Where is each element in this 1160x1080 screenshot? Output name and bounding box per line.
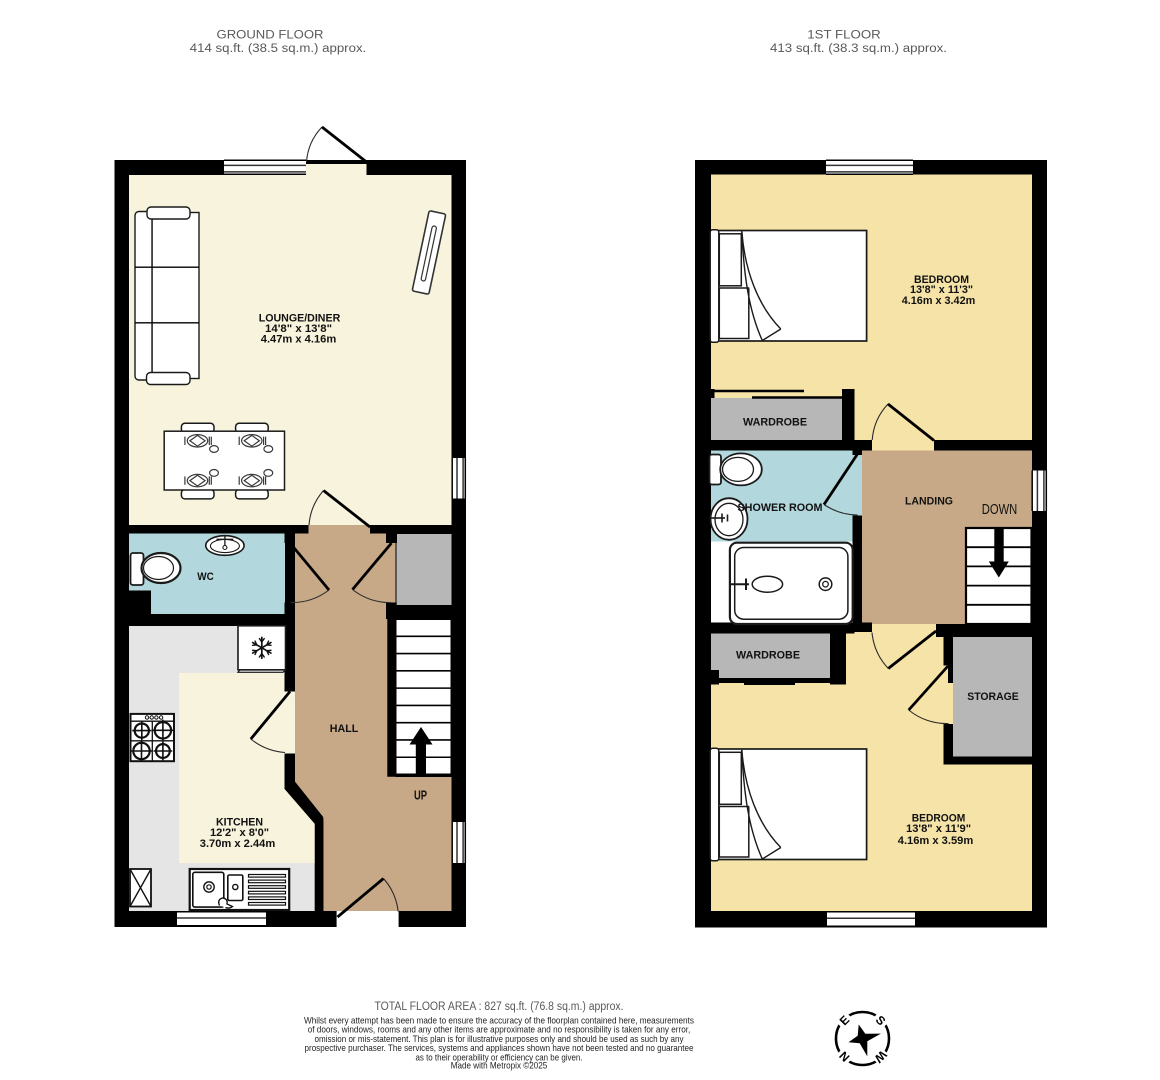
svg-text:WARDROBE: WARDROBE bbox=[736, 650, 800, 662]
svg-text:4.47m x 4.16m: 4.47m x 4.16m bbox=[261, 334, 337, 346]
svg-text:WARDROBE: WARDROBE bbox=[743, 417, 807, 429]
svg-text:WC: WC bbox=[197, 571, 214, 583]
svg-text:1ST FLOOR: 1ST FLOOR bbox=[807, 30, 881, 42]
svg-text:TOTAL FLOOR AREA : 827 sq.ft.: TOTAL FLOOR AREA : 827 sq.ft. (76.8 sq.m… bbox=[375, 1001, 624, 1013]
svg-text:HALL: HALL bbox=[330, 723, 359, 735]
svg-text:STORAGE: STORAGE bbox=[967, 691, 1019, 703]
svg-text:Made with Metropix ©2025: Made with Metropix ©2025 bbox=[451, 1061, 548, 1071]
svg-text:4.16m x 3.42m: 4.16m x 3.42m bbox=[902, 295, 976, 307]
svg-text:SHOWER ROOM: SHOWER ROOM bbox=[738, 502, 823, 514]
svg-text:4.16m x 3.59m: 4.16m x 3.59m bbox=[898, 835, 974, 847]
svg-text:GROUND FLOOR: GROUND FLOOR bbox=[217, 30, 324, 42]
svg-text:413 sq.ft. (38.3 sq.m.) approx: 413 sq.ft. (38.3 sq.m.) approx. bbox=[770, 43, 947, 55]
svg-text:13'8" x 11'9": 13'8" x 11'9" bbox=[906, 823, 971, 835]
svg-text:3.70m x 2.44m: 3.70m x 2.44m bbox=[200, 838, 276, 850]
svg-text:414 sq.ft. (38.5 sq.m.) approx: 414 sq.ft. (38.5 sq.m.) approx. bbox=[190, 43, 367, 55]
svg-text:LANDING: LANDING bbox=[905, 496, 953, 508]
svg-text:UP: UP bbox=[414, 789, 427, 803]
svg-text:DOWN: DOWN bbox=[982, 502, 1018, 518]
